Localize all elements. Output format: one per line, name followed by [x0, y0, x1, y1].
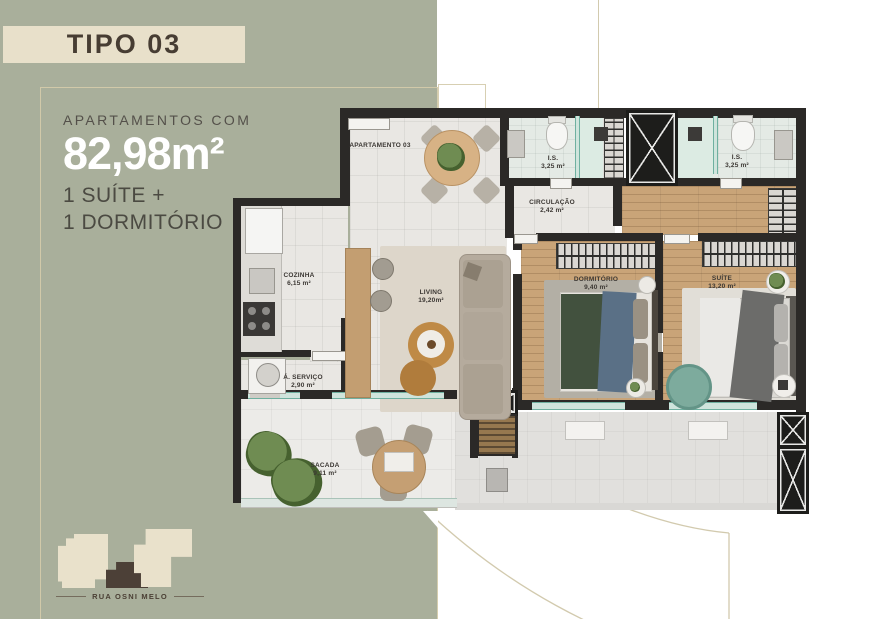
- bed-pillow: [633, 299, 648, 339]
- street-label: RUA OSNI MELO: [92, 592, 168, 601]
- site-keyplan: RUA OSNI MELO: [52, 524, 208, 608]
- bar-stool: [372, 258, 394, 280]
- bedroom-door: [514, 234, 538, 244]
- suite-plant: [769, 273, 785, 289]
- street-rule-right: [174, 596, 204, 597]
- nightstand: [638, 276, 656, 294]
- wall-suite-top: [698, 233, 806, 241]
- shower-area-1: [578, 116, 603, 180]
- bed-pillow: [633, 343, 648, 383]
- bed-runner-blue: [597, 291, 636, 393]
- column-lower: [777, 446, 809, 514]
- unit-type-label: TIPO 03: [67, 29, 182, 60]
- street-label-row: RUA OSNI MELO: [52, 592, 208, 601]
- suite-pillow: [774, 304, 788, 342]
- suite-side-table-decor: [778, 380, 788, 390]
- balcony-glass-railing: [241, 498, 457, 508]
- floorplan-poster: TIPO 03 APARTAMENTOS COM 82,98m² 1 SUÍTE…: [0, 0, 877, 619]
- wall-bedroom-left-b: [513, 274, 522, 402]
- coffee-table-decor: [427, 340, 436, 349]
- vanity-1: [507, 130, 525, 158]
- suite-pouf: [666, 364, 712, 410]
- keyplan-block-right: [134, 529, 192, 587]
- summary-feature-2: 1 DORMITÓRIO: [63, 209, 393, 236]
- toilet-1: [546, 122, 568, 150]
- bedroom-window-glass: [532, 402, 625, 410]
- summary-feature-1: 1 SUÍTE +: [63, 182, 393, 209]
- bathroom-1-door: [550, 178, 572, 189]
- sofa-cushion: [463, 364, 503, 414]
- table-plant: [437, 143, 465, 171]
- kitchen-island: [345, 248, 371, 398]
- shower-head-1: [594, 127, 608, 141]
- bedroom-plant: [630, 382, 640, 392]
- sofa-cushion: [463, 312, 503, 360]
- unit-type-badge: TIPO 03: [3, 26, 245, 63]
- summary-area: 82,98m²: [63, 131, 393, 177]
- terrace-sill: [688, 421, 728, 440]
- stove-burner: [262, 322, 270, 330]
- shower-head-2: [688, 127, 702, 141]
- stove: [243, 302, 275, 336]
- room-label-bathroom-2: I.S.3,25 m²: [697, 154, 777, 169]
- room-label-suite: SUÍTE13,20 m²: [682, 275, 762, 290]
- unit-summary: APARTAMENTOS COM 82,98m² 1 SUÍTE + 1 DOR…: [63, 112, 393, 236]
- summary-subtitle: APARTAMENTOS COM: [63, 112, 393, 128]
- toilet-2: [731, 121, 755, 151]
- wall-right-outer: [796, 108, 806, 412]
- bedroom-wardrobe: [556, 243, 660, 269]
- terrace-slab-edge: [455, 503, 803, 510]
- suite-wardrobe: [702, 241, 798, 267]
- bathroom-2-door: [720, 178, 742, 189]
- room-label-hall: CIRCULAÇÃO2,42 m²: [512, 199, 592, 214]
- stairs: [477, 414, 517, 456]
- room-label-living: LIVING19,20m²: [391, 289, 471, 304]
- room-label-laundry: Á. SERVIÇO2,90 m²: [263, 374, 343, 389]
- coffee-table-small: [400, 360, 436, 396]
- keyplan-block-left: [58, 534, 108, 588]
- stove-burner: [248, 307, 256, 315]
- column-upper: [777, 412, 809, 448]
- terrace-sill: [565, 421, 605, 440]
- laundry-door: [312, 351, 346, 361]
- wall-hall-stub: [613, 186, 622, 226]
- room-label-bedroom: DORMITÓRIO9,40 m²: [556, 276, 636, 291]
- balcony-tray: [384, 452, 414, 472]
- stove-burner: [262, 307, 270, 315]
- room-label-balcony: SACADA9,11 m²: [285, 462, 365, 477]
- laundry-shelf: [250, 394, 280, 398]
- room-label-bathroom-1: I.S.3,25 m²: [513, 155, 593, 170]
- wall-bedroom-top: [536, 233, 663, 241]
- room-label-kitchen: COZINHA6,15 m²: [259, 272, 339, 287]
- bar-stool: [370, 290, 392, 312]
- suite-door: [664, 234, 690, 244]
- terrace-hatch: [486, 468, 508, 492]
- street-rule-left: [56, 596, 86, 597]
- stove-burner: [248, 322, 256, 330]
- elevator-shaft: [626, 110, 678, 186]
